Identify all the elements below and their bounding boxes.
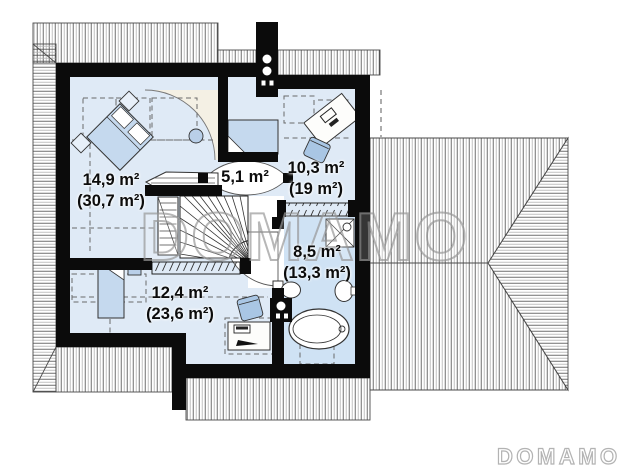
floor-plan-page: DOMAMO DOMAMO 14,9 m² (30,7 m²) 5,1 m² 1… [0,0,640,476]
floor-plan-drawing: DOMAMO DOMAMO [0,0,640,476]
room-area-total: (30,7 m²) [51,191,171,212]
wall-bath-low [272,322,284,364]
room-area: 8,5 m² [262,242,372,263]
room-area: 10,3 m² [266,158,366,179]
roof-eave-top-right [278,50,380,75]
wall-bottom [178,364,370,378]
room-label-bathroom: 8,5 m² (13,3 m²) [262,242,372,284]
room-label-right-bedroom: 10,3 m² (19 m²) [266,158,366,200]
bathtub [289,309,349,349]
wall-bath-mid [272,288,284,298]
roof-eave-bottom-left [56,347,172,392]
roof-eave-top-step [218,50,256,63]
pouf [189,129,203,143]
room-area: 14,9 m² [51,170,171,191]
room-area-total: (13,3 m²) [262,263,372,284]
room-area-total: (19 m²) [266,179,366,200]
roof-eave-bottom [186,378,370,420]
roof-eave-top [33,23,218,63]
desk [228,322,270,350]
room-label-bottom-bedroom: 12,4 m² (23,6 m²) [120,283,240,325]
wall-niche-left [218,63,228,160]
wall-bottom-left [56,333,186,347]
room-area-total: (23,6 m²) [120,304,240,325]
wall-rooms-divider [56,258,152,270]
watermark-small: DOMAMO [497,444,621,469]
single-bed [228,120,278,154]
roof-eave-left [33,44,56,392]
room-label-left-bedroom: 14,9 m² (30,7 m²) [51,170,171,212]
room-area: 12,4 m² [120,283,240,304]
